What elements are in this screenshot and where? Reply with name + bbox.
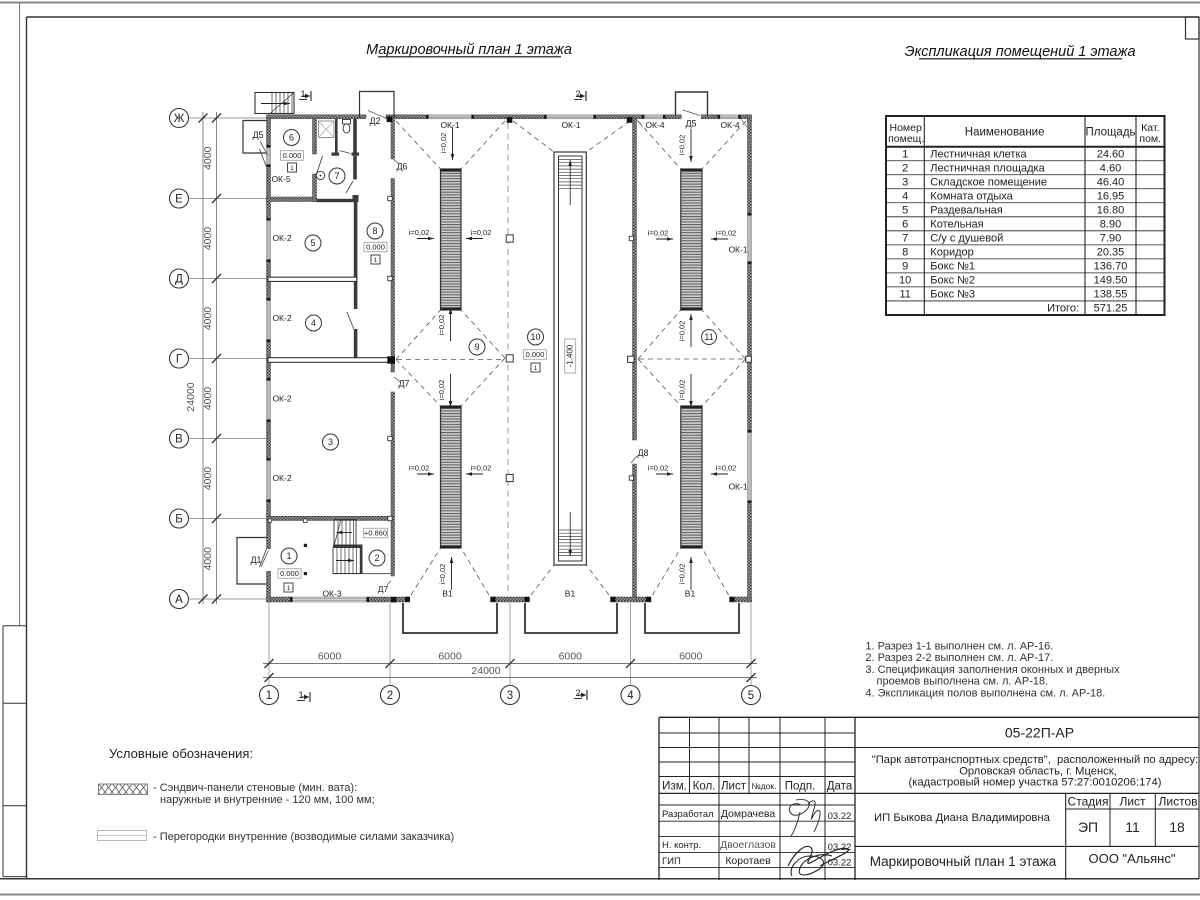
svg-text:i=0,02: i=0,02 bbox=[471, 228, 492, 237]
svg-text:3: 3 bbox=[507, 690, 513, 702]
svg-text:ОК-2: ОК-2 bbox=[272, 313, 291, 323]
svg-text:1. Разрез 1-1 выполнен см. л.: 1. Разрез 1-1 выполнен см. л. АР-16. bbox=[865, 641, 1053, 653]
svg-text:9: 9 bbox=[474, 342, 479, 352]
svg-text:8: 8 bbox=[902, 246, 908, 258]
svg-text:i=0,02: i=0,02 bbox=[716, 228, 737, 237]
svg-text:Дата: Дата bbox=[827, 781, 853, 793]
svg-text:03.22: 03.22 bbox=[828, 811, 852, 822]
svg-text:i=0,02: i=0,02 bbox=[437, 315, 446, 336]
svg-text:ОК-4: ОК-4 bbox=[720, 120, 739, 130]
svg-text:i=0,02: i=0,02 bbox=[648, 228, 669, 237]
svg-text:№док.: №док. bbox=[752, 781, 777, 791]
svg-text:4: 4 bbox=[902, 190, 908, 202]
svg-text:Г: Г bbox=[176, 354, 183, 366]
svg-text:7: 7 bbox=[902, 232, 908, 244]
svg-text:ОК-1: ОК-1 bbox=[728, 245, 747, 255]
svg-text:Условные обозначения:: Условные обозначения: bbox=[109, 746, 253, 761]
svg-text:Д7: Д7 bbox=[398, 379, 409, 389]
svg-text:наружные и внутренние - 120 мм: наружные и внутренние - 120 мм, 100 мм; bbox=[160, 794, 375, 806]
svg-text:Коротаев: Коротаев bbox=[725, 855, 771, 867]
svg-text:Бокс №3: Бокс №3 bbox=[930, 289, 975, 301]
svg-text:Б: Б bbox=[175, 514, 183, 526]
svg-text:11: 11 bbox=[899, 289, 910, 301]
svg-text:Складское помещение: Складское помещение bbox=[930, 176, 1047, 188]
svg-text:i=0,02: i=0,02 bbox=[678, 321, 687, 342]
svg-text:10: 10 bbox=[899, 274, 911, 286]
svg-text:05-22П-АР: 05-22П-АР bbox=[1005, 725, 1074, 741]
svg-text:24.60: 24.60 bbox=[1097, 148, 1125, 160]
svg-text:16.80: 16.80 bbox=[1097, 204, 1125, 216]
svg-text:Разработал: Разработал bbox=[662, 809, 714, 820]
svg-text:В1: В1 bbox=[685, 589, 696, 599]
svg-text:6000: 6000 bbox=[318, 651, 342, 663]
svg-text:4000: 4000 bbox=[202, 146, 214, 170]
svg-text:Изм.: Изм. bbox=[662, 781, 687, 793]
svg-text:Домрачева: Домрачева bbox=[721, 808, 776, 820]
svg-text:ОК-1: ОК-1 bbox=[440, 120, 459, 130]
svg-text:0.000: 0.000 bbox=[280, 569, 299, 578]
svg-text:i=0,02: i=0,02 bbox=[648, 463, 669, 472]
svg-text:Д7: Д7 bbox=[378, 584, 389, 594]
svg-text:Котельная: Котельная bbox=[930, 218, 983, 230]
svg-text:i=0,02: i=0,02 bbox=[678, 564, 687, 585]
svg-text:7.90: 7.90 bbox=[1100, 232, 1121, 244]
svg-text:ИП Быкова Диана Владимировна: ИП Быкова Диана Владимировна bbox=[874, 812, 1051, 824]
svg-text:Д1: Д1 bbox=[250, 555, 261, 565]
svg-text:138.55: 138.55 bbox=[1094, 289, 1128, 301]
svg-text:5: 5 bbox=[902, 204, 908, 216]
svg-text:4. Экспликация полов выполнена: 4. Экспликация полов выполнена см. л. АР… bbox=[865, 687, 1105, 699]
svg-text:3: 3 bbox=[902, 176, 908, 188]
svg-text:проемов выполнена см. л. АР-18: проемов выполнена см. л. АР-18. bbox=[877, 676, 1049, 688]
svg-text:20.35: 20.35 bbox=[1097, 246, 1125, 258]
svg-text:6000: 6000 bbox=[438, 651, 462, 663]
svg-text:11: 11 bbox=[704, 332, 713, 342]
svg-text:+0.860: +0.860 bbox=[364, 529, 387, 538]
svg-text:4.60: 4.60 bbox=[1100, 162, 1121, 174]
svg-text:2: 2 bbox=[575, 688, 580, 698]
svg-text:2. Разрез 2-2 выполнен см. л.: 2. Разрез 2-2 выполнен см. л. АР-17. bbox=[865, 652, 1053, 664]
svg-text:0.000: 0.000 bbox=[283, 151, 302, 160]
svg-text:4: 4 bbox=[627, 690, 634, 702]
svg-text:- Перегородки внутренние (возв: - Перегородки внутренние (возводимые сил… bbox=[153, 831, 454, 843]
svg-text:6000: 6000 bbox=[679, 651, 703, 663]
svg-text:Площадь: Площадь bbox=[1085, 127, 1135, 139]
svg-text:46.40: 46.40 bbox=[1097, 176, 1125, 188]
svg-text:i=0,02: i=0,02 bbox=[409, 463, 430, 472]
svg-text:1: 1 bbox=[290, 165, 294, 172]
svg-text:i=0,02: i=0,02 bbox=[678, 135, 687, 156]
svg-text:В1: В1 bbox=[442, 589, 453, 599]
svg-text:6000: 6000 bbox=[559, 651, 583, 663]
svg-text:ОК-2: ОК-2 bbox=[272, 473, 291, 483]
svg-text:4000: 4000 bbox=[202, 307, 214, 331]
svg-text:Маркировочный план 1 этажа: Маркировочный план 1 этажа bbox=[870, 854, 1057, 869]
svg-text:18: 18 bbox=[1169, 819, 1185, 835]
svg-text:ОК-2: ОК-2 bbox=[272, 394, 291, 404]
svg-text:ОК-1: ОК-1 bbox=[561, 120, 580, 130]
svg-text:149.50: 149.50 bbox=[1094, 274, 1128, 286]
svg-text:1: 1 bbox=[266, 690, 272, 702]
svg-text:8.90: 8.90 bbox=[1100, 218, 1121, 230]
svg-text:24000: 24000 bbox=[471, 665, 500, 677]
svg-text:Итого:: Итого: bbox=[1047, 303, 1079, 315]
svg-text:Н. контр.: Н. контр. bbox=[662, 840, 701, 851]
svg-text:i=0,02: i=0,02 bbox=[716, 463, 737, 472]
svg-text:4000: 4000 bbox=[202, 547, 214, 571]
svg-text:i=0,02: i=0,02 bbox=[439, 133, 448, 154]
svg-text:1: 1 bbox=[374, 257, 378, 264]
svg-text:Д5: Д5 bbox=[252, 130, 263, 140]
svg-text:помещ.: помещ. bbox=[888, 133, 924, 145]
svg-text:Д: Д bbox=[175, 274, 183, 286]
svg-text:ЭП: ЭП bbox=[1078, 819, 1098, 835]
svg-text:Ж: Ж bbox=[174, 113, 185, 125]
svg-text:ООО "Альянс": ООО "Альянс" bbox=[1089, 851, 1176, 866]
svg-text:ОК-4: ОК-4 bbox=[645, 120, 664, 130]
svg-text:2: 2 bbox=[902, 162, 908, 174]
svg-text:9: 9 bbox=[902, 260, 908, 272]
svg-text:2: 2 bbox=[575, 89, 580, 99]
svg-text:Листов: Листов bbox=[1159, 795, 1198, 809]
svg-text:Д2: Д2 bbox=[369, 116, 380, 126]
svg-text:Экспликация помещений 1 этажа: Экспликация помещений 1 этажа bbox=[904, 44, 1135, 60]
svg-text:Бокс №2: Бокс №2 bbox=[930, 274, 975, 286]
svg-text:1: 1 bbox=[298, 690, 303, 700]
svg-text:- Сэндвич-панели стеновые (мин: - Сэндвич-панели стеновые (мин. вата): bbox=[153, 782, 357, 794]
svg-text:Подп.: Подп. bbox=[785, 781, 816, 793]
svg-text:А: А bbox=[175, 594, 183, 606]
svg-text:Д8: Д8 bbox=[637, 448, 648, 458]
svg-text:Лестничная площадка: Лестничная площадка bbox=[930, 162, 1045, 174]
svg-text:Раздевальная: Раздевальная bbox=[930, 204, 1002, 216]
svg-text:ГИП: ГИП bbox=[662, 856, 681, 867]
svg-text:0.000: 0.000 bbox=[366, 243, 385, 252]
svg-text:Д5: Д5 bbox=[685, 119, 696, 129]
svg-text:4000: 4000 bbox=[202, 387, 214, 411]
svg-text:5: 5 bbox=[748, 690, 754, 702]
svg-text:В1: В1 bbox=[565, 589, 576, 599]
svg-text:3: 3 bbox=[328, 437, 333, 447]
svg-text:4000: 4000 bbox=[202, 467, 214, 491]
svg-text:В: В bbox=[175, 434, 183, 446]
svg-text:3. Спецификация заполнения око: 3. Спецификация заполнения оконных и две… bbox=[865, 664, 1120, 676]
svg-text:1: 1 bbox=[287, 585, 291, 592]
svg-text:8: 8 bbox=[372, 226, 377, 236]
svg-text:Е: Е bbox=[175, 194, 183, 206]
svg-text:5: 5 bbox=[310, 238, 315, 248]
svg-text:4: 4 bbox=[311, 318, 316, 328]
svg-text:6: 6 bbox=[902, 218, 908, 230]
svg-text:i=0,02: i=0,02 bbox=[437, 380, 446, 401]
svg-text:4000: 4000 bbox=[202, 227, 214, 251]
svg-text:(кадастровый номер участка 57:: (кадастровый номер участка 57:27:0010206… bbox=[909, 777, 1162, 789]
svg-text:Коридор: Коридор bbox=[930, 246, 973, 258]
svg-text:ОК-5: ОК-5 bbox=[271, 174, 290, 184]
svg-text:Лист: Лист bbox=[721, 781, 747, 793]
svg-text:"Парк автотранспортных средств: "Парк автотранспортных средств", располо… bbox=[872, 754, 1198, 766]
svg-text:Лестничная клетка: Лестничная клетка bbox=[930, 148, 1027, 160]
svg-text:Лист: Лист bbox=[1119, 795, 1146, 809]
svg-text:1: 1 bbox=[286, 551, 291, 561]
svg-text:Бокс №1: Бокс №1 bbox=[930, 260, 975, 272]
svg-text:ОК-1: ОК-1 bbox=[728, 482, 747, 492]
svg-text:2: 2 bbox=[374, 553, 379, 563]
svg-text:Кол.: Кол. bbox=[693, 781, 716, 793]
svg-text:571.25: 571.25 bbox=[1094, 303, 1128, 315]
svg-text:Двоеглазов: Двоеглазов bbox=[720, 839, 776, 851]
svg-text:-1.400: -1.400 bbox=[566, 344, 575, 367]
svg-text:ОК-3: ОК-3 bbox=[322, 589, 341, 599]
svg-text:11: 11 bbox=[1125, 819, 1140, 835]
svg-text:10: 10 bbox=[530, 332, 540, 342]
svg-text:Маркировочный план 1 этажа: Маркировочный план 1 этажа bbox=[366, 42, 572, 58]
svg-text:1: 1 bbox=[902, 148, 908, 160]
svg-text:136.70: 136.70 bbox=[1094, 260, 1128, 272]
svg-text:6: 6 bbox=[289, 133, 294, 143]
svg-text:1: 1 bbox=[534, 365, 538, 372]
svg-text:i=0,02: i=0,02 bbox=[409, 228, 430, 237]
svg-text:пом.: пом. bbox=[1139, 133, 1161, 145]
svg-text:i=0,02: i=0,02 bbox=[678, 380, 687, 401]
svg-text:Наименование: Наименование bbox=[965, 127, 1045, 139]
svg-text:16.95: 16.95 bbox=[1097, 190, 1125, 202]
svg-text:ОК-2: ОК-2 bbox=[272, 233, 291, 243]
svg-text:Стадия: Стадия bbox=[1068, 795, 1109, 809]
svg-text:Комната отдыха: Комната отдыха bbox=[930, 190, 1013, 202]
svg-text:С/у с душевой: С/у с душевой bbox=[930, 232, 1003, 244]
svg-text:1: 1 bbox=[300, 89, 305, 99]
svg-text:2: 2 bbox=[387, 690, 393, 702]
svg-text:7: 7 bbox=[334, 171, 339, 181]
svg-text:03.22: 03.22 bbox=[828, 858, 852, 869]
svg-text:0.000: 0.000 bbox=[526, 350, 545, 359]
svg-text:i=0,02: i=0,02 bbox=[438, 564, 447, 585]
svg-text:i=0,02: i=0,02 bbox=[471, 463, 492, 472]
svg-text:24000: 24000 bbox=[185, 382, 197, 411]
